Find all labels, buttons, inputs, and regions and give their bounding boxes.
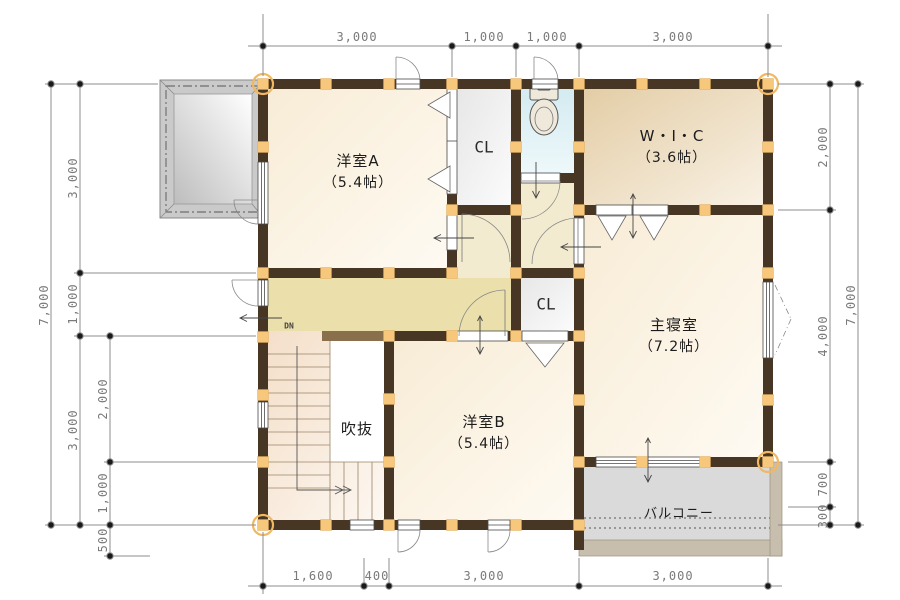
dim-left-inner-3: 500	[96, 528, 110, 553]
lower-roof	[160, 80, 264, 218]
room-label-closet-mid: CL	[536, 295, 555, 314]
room-label-yoshitsu-a: 洋室A（5.4帖）	[323, 151, 393, 193]
dim-top-1: 3,000	[336, 30, 377, 44]
dim-right-inner-3: 700	[816, 472, 830, 497]
corridor-floor	[268, 278, 516, 331]
dim-left-mid-2: 1,000	[66, 283, 80, 324]
dim-left-inner-2: 1,000	[96, 472, 110, 513]
dim-top-2: 1,000	[463, 30, 504, 44]
dim-right-inner-4: 300	[816, 504, 830, 529]
stair-half-wall	[322, 331, 384, 341]
window-toilet-top	[532, 57, 558, 89]
dim-right-inner-1: 2,000	[816, 126, 830, 167]
window-room-a-top	[396, 57, 420, 89]
room-label-closet-top: CL	[474, 138, 493, 157]
dim-right-inner-2: 4,000	[816, 315, 830, 356]
window-stairs-south	[350, 520, 374, 530]
dim-left-mid-1: 3,000	[66, 157, 80, 198]
dim-right-outer: 7,000	[844, 284, 858, 325]
window-room-b-south-1	[398, 520, 420, 552]
dim-top-4: 3,000	[652, 30, 693, 44]
void-floor	[330, 341, 384, 462]
toilet-icon	[530, 85, 558, 135]
room-label-void: 吹抜	[341, 419, 373, 441]
stairs-down-label: DN	[284, 322, 294, 331]
window-master-east	[763, 282, 791, 358]
dim-left-mid-3: 3,000	[66, 409, 80, 450]
dim-left-outer: 7,000	[37, 284, 51, 325]
dim-bottom-4: 3,000	[652, 569, 693, 583]
room-label-master: 主寝室（7.2帖）	[639, 315, 709, 357]
window-stairs-west	[258, 402, 268, 428]
dim-bottom-1: 1,600	[292, 569, 333, 583]
dim-bottom-2: 400	[365, 569, 390, 583]
dim-top-3: 1,000	[526, 30, 567, 44]
room-label-yoshitsu-b: 洋室B（5.4帖）	[449, 412, 519, 454]
dim-bottom-3: 3,000	[463, 569, 504, 583]
room-label-balcony: バルコニー	[644, 503, 714, 522]
window-room-b-south-2	[488, 520, 510, 552]
floor-plan: 洋室A（5.4帖） CL W・I・C（3.6帖） 主寝室（7.2帖） CL 洋室…	[0, 0, 900, 600]
dim-left-inner-1: 2,000	[96, 378, 110, 419]
room-label-wic: W・I・C（3.6帖）	[637, 126, 707, 168]
floor-plan-canvas	[0, 0, 900, 600]
window-hall-west	[232, 280, 268, 306]
